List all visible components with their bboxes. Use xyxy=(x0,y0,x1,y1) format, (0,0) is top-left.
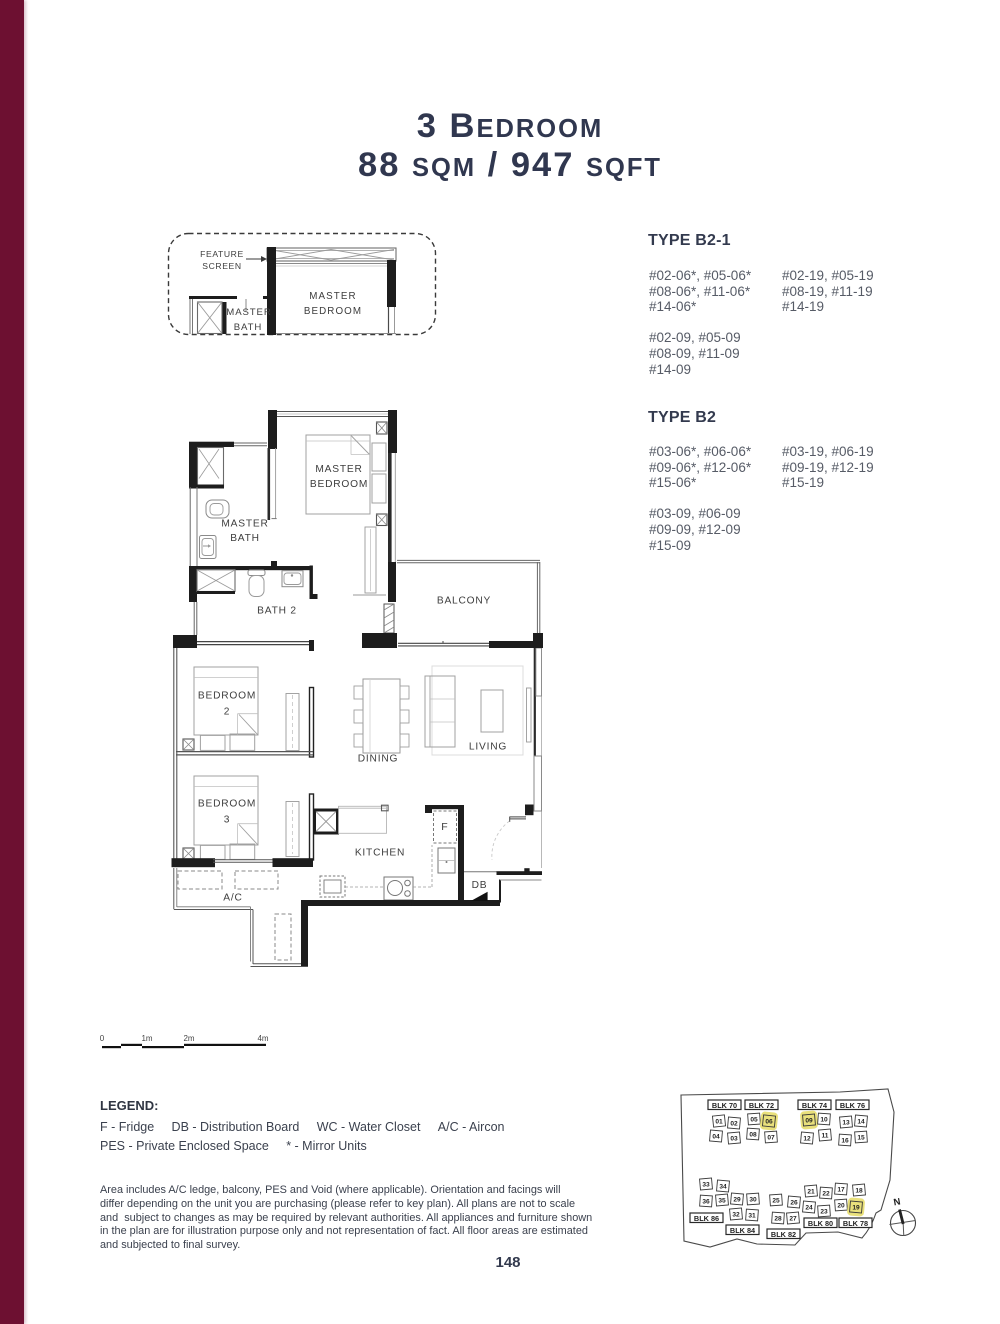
svg-text:22: 22 xyxy=(822,1191,830,1198)
svg-text:BLK 80: BLK 80 xyxy=(808,1219,833,1228)
svg-text:F: F xyxy=(441,821,448,833)
svg-text:11: 11 xyxy=(822,1133,829,1140)
svg-text:BLK 76: BLK 76 xyxy=(840,1101,865,1110)
svg-text:N: N xyxy=(893,1196,902,1208)
svg-text:03: 03 xyxy=(730,1136,738,1143)
svg-text:01: 01 xyxy=(715,1119,723,1126)
svg-text:BEDROOM: BEDROOM xyxy=(304,306,362,317)
svg-text:BLK 70: BLK 70 xyxy=(712,1101,737,1110)
svg-text:25: 25 xyxy=(772,1198,780,1205)
svg-text:05: 05 xyxy=(750,1117,758,1124)
svg-text:17: 17 xyxy=(837,1187,845,1194)
svg-text:3: 3 xyxy=(224,815,230,826)
svg-text:BLK 86: BLK 86 xyxy=(694,1214,719,1223)
svg-text:16: 16 xyxy=(841,1138,849,1145)
svg-text:02: 02 xyxy=(730,1121,738,1128)
svg-text:34: 34 xyxy=(719,1184,727,1191)
svg-text:MASTER: MASTER xyxy=(221,519,268,530)
svg-text:32: 32 xyxy=(732,1212,740,1219)
svg-text:10: 10 xyxy=(820,1117,828,1124)
svg-text:DINING: DINING xyxy=(358,754,398,765)
svg-text:KITCHEN: KITCHEN xyxy=(355,848,405,859)
svg-text:MASTER: MASTER xyxy=(226,307,271,318)
svg-text:BEDROOM: BEDROOM xyxy=(198,799,256,810)
svg-text:18: 18 xyxy=(855,1188,863,1195)
svg-text:MASTER: MASTER xyxy=(309,291,356,302)
svg-text:BATH: BATH xyxy=(230,533,260,544)
svg-text:36: 36 xyxy=(702,1199,710,1206)
svg-text:DB: DB xyxy=(472,880,488,891)
svg-text:14: 14 xyxy=(857,1119,865,1126)
svg-text:1m: 1m xyxy=(141,1034,152,1043)
svg-text:BLK 74: BLK 74 xyxy=(802,1101,828,1110)
svg-text:27: 27 xyxy=(789,1216,797,1223)
svg-text:2: 2 xyxy=(224,707,230,718)
svg-text:FEATURE: FEATURE xyxy=(200,249,244,259)
svg-text:35: 35 xyxy=(718,1198,726,1205)
svg-text:0: 0 xyxy=(100,1034,105,1043)
svg-text:28: 28 xyxy=(774,1216,782,1223)
svg-text:24: 24 xyxy=(805,1205,813,1212)
svg-text:06: 06 xyxy=(765,1119,773,1126)
svg-text:SCREEN: SCREEN xyxy=(202,261,241,271)
svg-text:30: 30 xyxy=(749,1197,757,1204)
svg-text:07: 07 xyxy=(767,1135,775,1142)
svg-text:33: 33 xyxy=(702,1182,710,1189)
svg-text:04: 04 xyxy=(712,1134,720,1141)
svg-text:BLK 84: BLK 84 xyxy=(730,1226,756,1235)
svg-text:BLK 82: BLK 82 xyxy=(771,1230,796,1239)
svg-text:31: 31 xyxy=(748,1213,756,1220)
svg-text:2m: 2m xyxy=(183,1034,194,1043)
svg-text:20: 20 xyxy=(837,1203,845,1210)
svg-text:BLK 78: BLK 78 xyxy=(843,1219,868,1228)
svg-text:26: 26 xyxy=(790,1200,798,1207)
svg-text:29: 29 xyxy=(733,1197,741,1204)
svg-text:BLK 72: BLK 72 xyxy=(749,1101,774,1110)
svg-text:19: 19 xyxy=(852,1205,860,1212)
svg-text:MASTER: MASTER xyxy=(315,464,362,475)
svg-text:08: 08 xyxy=(749,1132,757,1139)
svg-text:23: 23 xyxy=(820,1209,828,1216)
svg-text:BATH: BATH xyxy=(234,322,262,333)
svg-text:21: 21 xyxy=(807,1189,815,1196)
svg-text:13: 13 xyxy=(842,1120,850,1127)
svg-text:LIVING: LIVING xyxy=(469,742,507,753)
svg-text:12: 12 xyxy=(803,1136,811,1143)
svg-text:BATH 2: BATH 2 xyxy=(257,606,297,617)
svg-text:09: 09 xyxy=(805,1118,813,1125)
svg-text:BALCONY: BALCONY xyxy=(437,596,491,607)
svg-text:4m: 4m xyxy=(257,1034,268,1043)
svg-text:A/C: A/C xyxy=(223,893,242,904)
svg-text:BEDROOM: BEDROOM xyxy=(198,691,256,702)
svg-text:BEDROOM: BEDROOM xyxy=(310,479,368,490)
svg-text:15: 15 xyxy=(857,1135,865,1142)
